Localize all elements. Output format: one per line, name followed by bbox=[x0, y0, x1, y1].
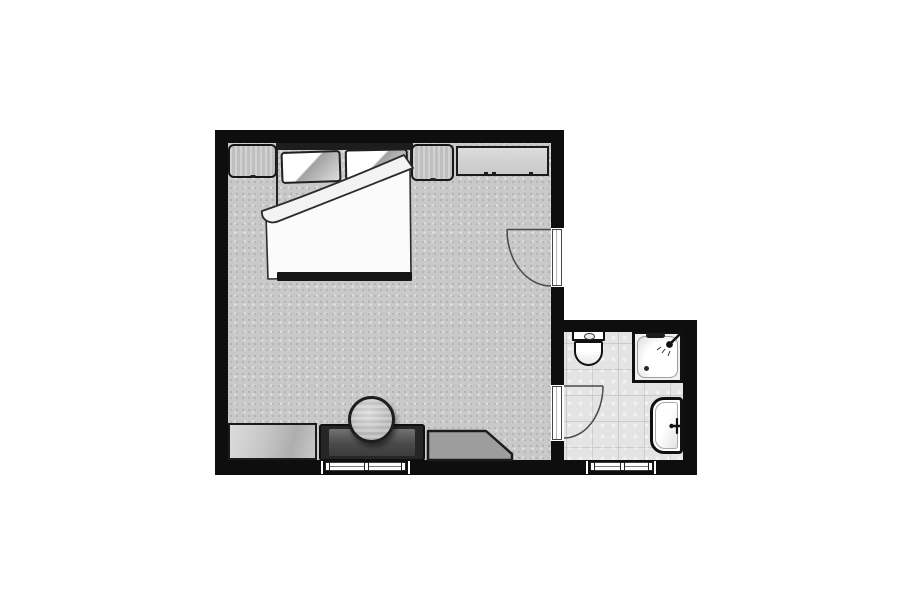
window-jamb bbox=[586, 461, 588, 474]
floor-plan bbox=[0, 0, 913, 608]
window-mullion bbox=[325, 462, 330, 471]
wall-bathroom-right bbox=[683, 320, 697, 475]
bathroom-window bbox=[590, 462, 653, 471]
washbasin-bowl bbox=[655, 402, 678, 449]
window-mullion bbox=[648, 462, 653, 471]
wall-left bbox=[215, 130, 228, 475]
shower-grab-bar bbox=[646, 333, 665, 338]
low-cabinet bbox=[228, 423, 317, 460]
pillow-left bbox=[280, 150, 341, 184]
drawer-pull bbox=[484, 172, 488, 175]
nightstand-knob bbox=[430, 178, 435, 181]
window-mullion bbox=[590, 462, 595, 471]
round-stool bbox=[348, 396, 395, 443]
window-jamb bbox=[654, 461, 656, 474]
wall-bathroom-top bbox=[564, 320, 697, 332]
window-jamb bbox=[321, 461, 323, 474]
window-mullion bbox=[620, 462, 625, 471]
bedroom-door-leaf bbox=[552, 229, 562, 286]
pillow-right bbox=[345, 148, 409, 181]
wall-right-upper bbox=[551, 130, 564, 228]
nightstand-knob bbox=[250, 175, 255, 178]
wall-top bbox=[215, 130, 564, 143]
shower bbox=[632, 331, 683, 383]
bedroom-window bbox=[325, 462, 406, 471]
washbasin bbox=[650, 397, 683, 454]
window-mullion bbox=[401, 462, 406, 471]
nightstand-left bbox=[228, 144, 277, 178]
window-mullion bbox=[364, 462, 369, 471]
drawer-pull bbox=[492, 172, 496, 175]
shower-tray bbox=[637, 336, 678, 378]
shower-drain bbox=[644, 366, 649, 371]
dresser bbox=[456, 146, 549, 176]
drawer-pull bbox=[529, 172, 533, 175]
bathroom-door-leaf bbox=[552, 386, 562, 440]
wall-right-lower bbox=[551, 441, 564, 460]
nightstand-right bbox=[411, 144, 454, 181]
wall-right-middle bbox=[551, 287, 564, 385]
toilet-flush-button bbox=[584, 333, 595, 340]
window-jamb bbox=[408, 461, 410, 474]
